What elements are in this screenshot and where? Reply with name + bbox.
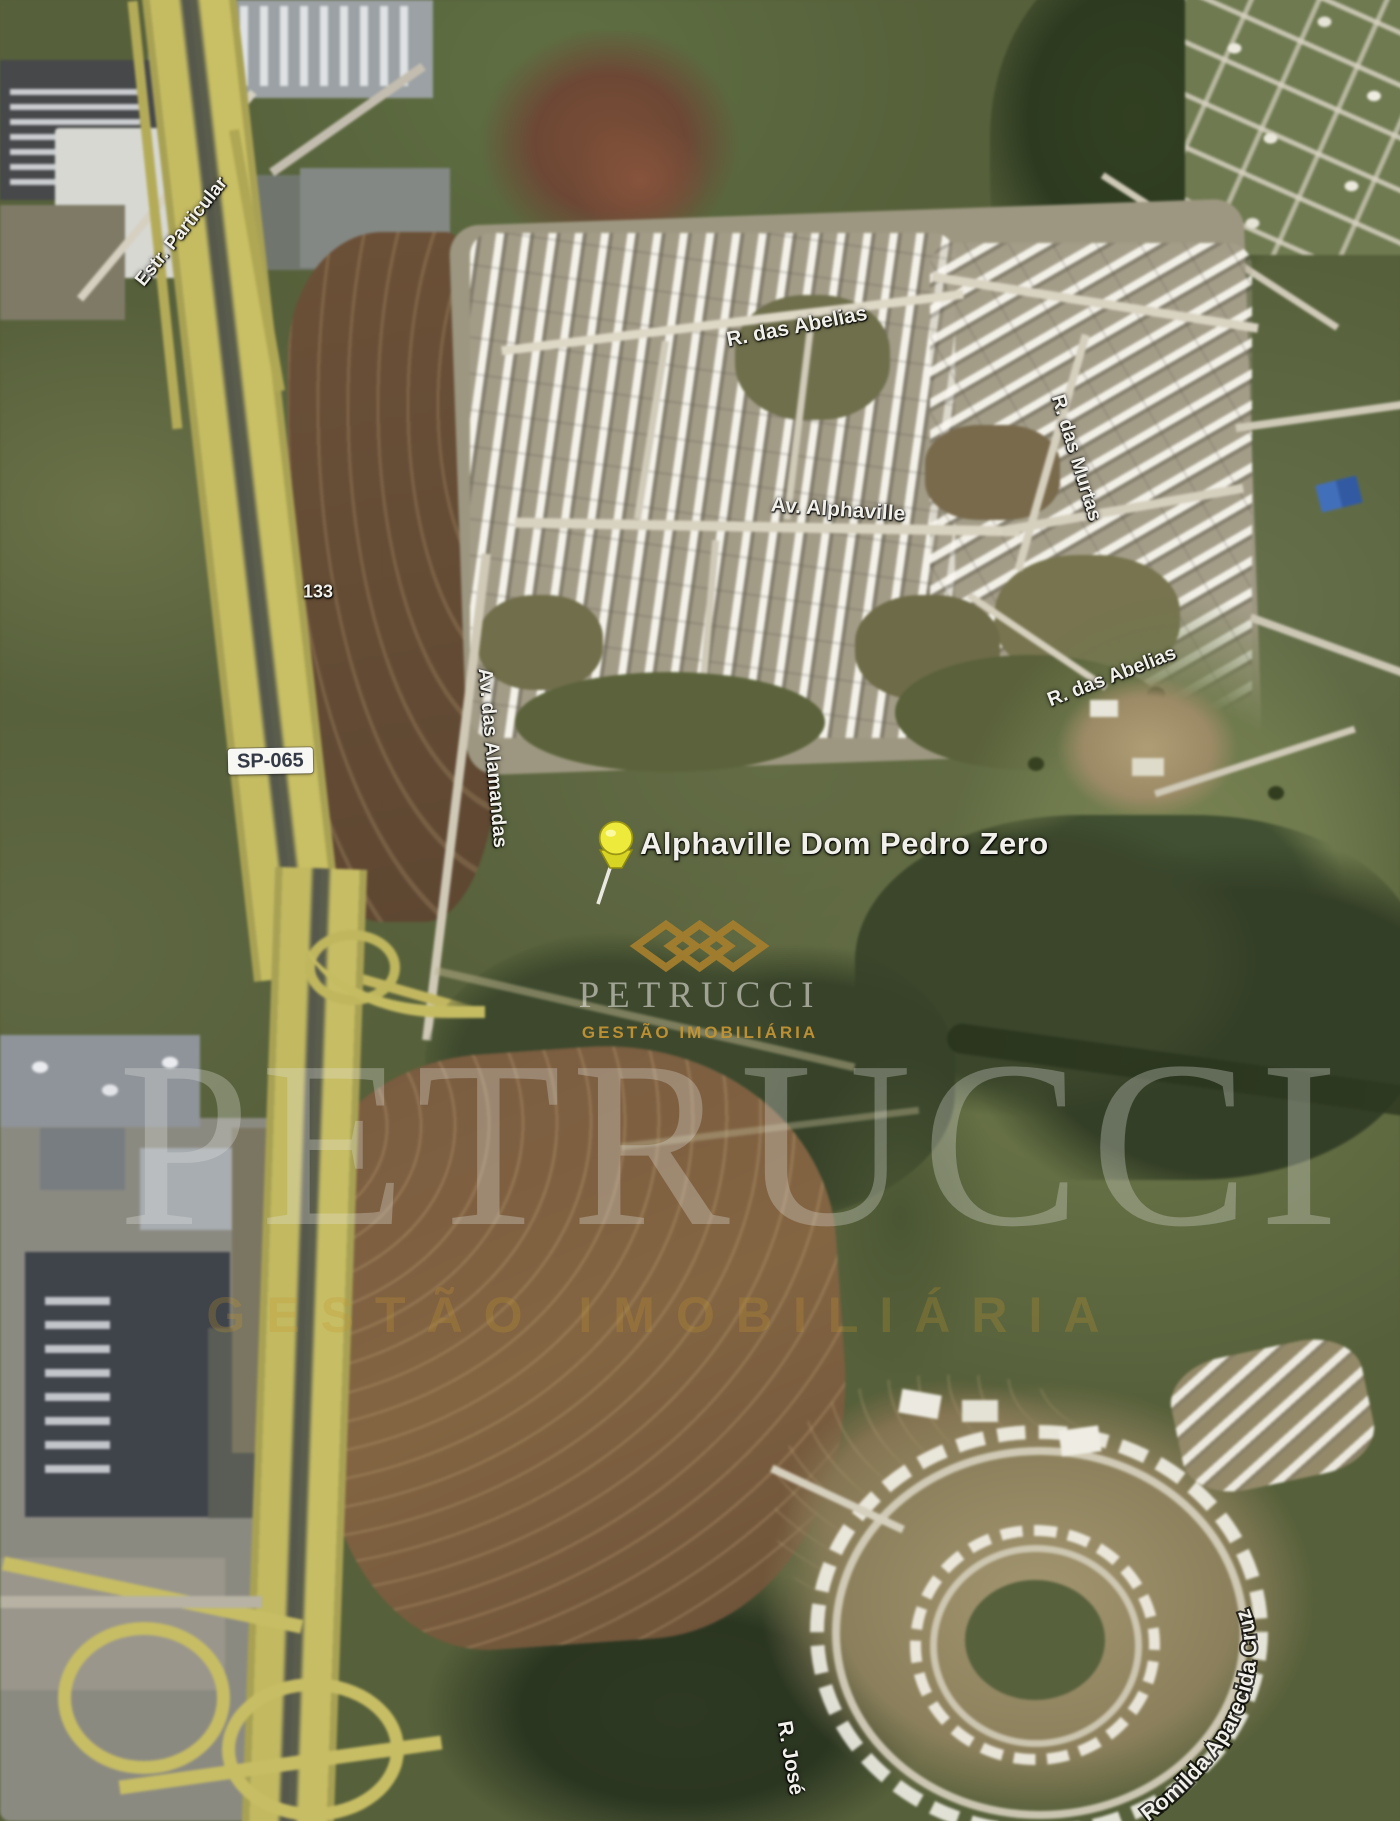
road-label-text: Romilda Aparecida Cruz: [1136, 1606, 1262, 1821]
road-label-r-jose: R. José: [772, 1719, 809, 1797]
route-shield-sp065: SP-065: [228, 747, 313, 774]
road-label-r-das-murtas: R. das Murtas: [1046, 392, 1106, 524]
road-label-estr-particular: Estr. Particular: [131, 173, 233, 291]
petrucci-diamond-logo-icon: [625, 918, 775, 974]
satellite-map-canvas[interactable]: Estr. Particular R. das Abelias Av. Alph…: [0, 0, 1400, 1821]
road-label-av-das-alamandas: Av. das Alamandas: [473, 667, 512, 849]
yellow-pushpin-icon[interactable]: [586, 820, 644, 912]
watermark-big-brand: PETRUCCI: [118, 1008, 1349, 1281]
road-label-r-das-abelias-east: R. das Abelias: [1044, 642, 1179, 712]
marker-title[interactable]: Alphaville Dom Pedro Zero: [640, 826, 1049, 862]
svg-text:Romilda Aparecida Cruz: Romilda Aparecida Cruz: [1136, 1606, 1262, 1821]
road-label-av-alphaville: Av. Alphaville: [770, 493, 906, 526]
road-label-r-das-abelias-north: R. das Abelias: [725, 302, 870, 353]
road-label-romilda-aparecida-cruz: Romilda Aparecida Cruz: [0, 0, 1400, 1821]
route-marker-133: 133: [303, 582, 333, 603]
watermark-big-tagline: GESTÃO IMOBILIÁRIA: [206, 1286, 1120, 1344]
